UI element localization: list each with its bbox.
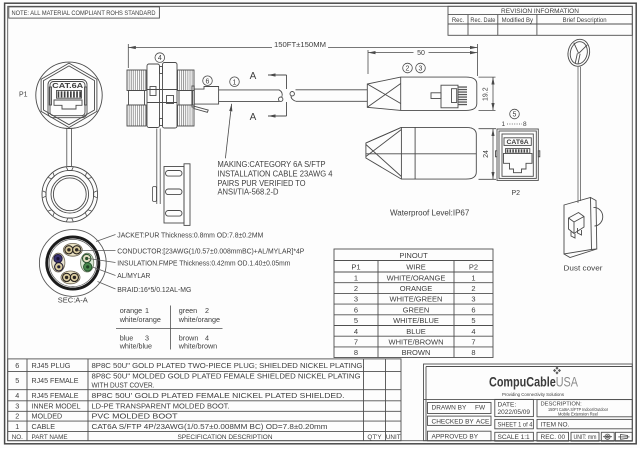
svg-text:150FT±150MM: 150FT±150MM [274,42,326,49]
svg-text:P2: P2 [469,262,478,271]
svg-text:7: 7 [471,338,475,347]
svg-text:RJ45 FEMALE: RJ45 FEMALE [32,391,79,400]
svg-text:INSULATION.FMPE Thickness:0.42: INSULATION.FMPE Thickness:0.42mm OD.1.40… [117,261,290,268]
svg-text:orange: orange [120,306,142,315]
svg-text:Rec. Date: Rec. Date [470,18,496,24]
svg-text:PINOUT: PINOUT [399,251,428,260]
svg-text:FW: FW [475,405,486,412]
svg-text:white/orange: white/orange [178,315,220,324]
svg-text:ACE: ACE [476,418,490,425]
svg-text:ANSI/TIA-568.2-D: ANSI/TIA-568.2-D [218,188,279,197]
svg-text:5: 5 [513,112,517,119]
svg-text:UNIT: UNIT [386,434,401,441]
svg-text:3: 3 [419,66,423,73]
svg-text:8P8C 50U" MOLDED GOLD PLATED F: 8P8C 50U" MOLDED GOLD PLATED FEMALE SHIE… [92,371,361,380]
svg-text:SEC:A-A: SEC:A-A [58,296,88,305]
svg-text:CAT6A: CAT6A [507,139,529,146]
svg-text:3: 3 [354,295,358,304]
svg-text:LD-PE TRANSPARENT MOLDED BOOT.: LD-PE TRANSPARENT MOLDED BOOT. [92,402,230,411]
svg-text:AL/MYLAR: AL/MYLAR [117,273,150,280]
svg-text:6: 6 [354,305,358,314]
svg-text:WHITE/GREEN: WHITE/GREEN [390,295,443,304]
svg-text:SHEET 1 of 4: SHEET 1 of 4 [498,422,533,429]
svg-text:1: 1 [233,79,237,86]
svg-text:REC. 00: REC. 00 [541,434,566,441]
svg-text:DATE:: DATE: [498,402,517,409]
svg-text:BROWN: BROWN [402,348,431,357]
svg-text:CompuCableUSA: CompuCableUSA [489,375,578,390]
svg-text:8P8C 50U" GOLD PLATED TWO-PIE: 8P8C 50U" GOLD PLATED TWO-PIECE PLUG; SH… [92,361,365,370]
svg-text:white/brown: white/brown [178,342,217,351]
svg-text:4: 4 [471,327,475,336]
svg-text:Dust cover: Dust cover [564,266,604,273]
svg-text:BLUE: BLUE [406,327,426,336]
svg-text:7: 7 [354,338,358,347]
svg-text:4: 4 [15,391,19,400]
svg-text:PART NAME: PART NAME [32,434,68,441]
svg-text:WHITE/BLUE: WHITE/BLUE [393,316,439,325]
svg-text:2022/05/09: 2022/05/09 [498,409,531,416]
svg-text:CONDUCTOR:[23AWG(1/0.57±0.008m: CONDUCTOR:[23AWG(1/0.57±0.008mmBC)+AL/MY… [117,248,304,255]
svg-text:GREEN: GREEN [403,305,430,314]
svg-text:Providing Connectivity Solutio: Providing Connectivity Solutions [502,392,565,398]
svg-text:8: 8 [523,121,527,128]
svg-text:JACKET:PUR Thickness:0.8mm OD:: JACKET:PUR Thickness:0.8mm OD:7.8±0.2MM [117,233,263,240]
svg-text:RJ45 PLUG: RJ45 PLUG [32,361,71,370]
svg-text:CABLE: CABLE [32,422,56,431]
svg-text:6: 6 [15,361,19,370]
svg-text:CAT6A S/FTP 4P/23AWG(1/0.57±0.: CAT6A S/FTP 4P/23AWG(1/0.57±0.008MM BC) … [92,422,328,431]
svg-text:1: 1 [15,422,19,431]
svg-text:Rec.: Rec. [452,18,465,24]
svg-text:INNER MODEL: INNER MODEL [32,402,81,411]
svg-text:PAIRS PUR VERIFIED TO: PAIRS PUR VERIFIED TO [218,179,306,188]
svg-text:WIRE: WIRE [406,262,426,271]
svg-text:6: 6 [206,78,210,85]
svg-text:8: 8 [354,348,358,357]
svg-text:WHITE/BROWN: WHITE/BROWN [389,338,444,347]
svg-text:P1: P1 [351,262,360,271]
svg-text:A: A [250,112,257,123]
svg-text:2: 2 [471,284,475,293]
svg-text:50: 50 [417,50,425,57]
svg-text:Brief Description: Brief Description [563,18,607,24]
svg-text:MOLDED: MOLDED [32,412,63,421]
svg-text:5: 5 [471,316,475,325]
svg-text:1: 1 [471,273,475,282]
svg-text:6: 6 [471,305,475,314]
svg-text:UNIT: mm: UNIT: mm [574,435,597,441]
svg-text:INSTALLATION CABLE 23AWG 4: INSTALLATION CABLE 23AWG 4 [218,169,334,178]
svg-text:Modified By: Modified By [502,18,533,24]
svg-text:8P8C 50U' GOLD PLATED FEMALE N: 8P8C 50U' GOLD PLATED FEMALE NICKEL PLAT… [92,391,345,400]
svg-text:8: 8 [471,348,475,357]
svg-text:SCALE 1:1: SCALE 1:1 [498,434,531,441]
svg-text:MAKING:CATEGORY 6A S/FTP: MAKING:CATEGORY 6A S/FTP [218,160,326,169]
svg-text:WITH DUST COVER.: WITH DUST COVER. [92,381,155,390]
svg-text:P2: P2 [512,190,521,197]
svg-text:A: A [250,71,257,82]
svg-text:RJ45 FEMALE: RJ45 FEMALE [32,376,79,385]
svg-text:QT'Y: QT'Y [367,434,382,441]
svg-text:2: 2 [205,306,209,315]
svg-text:5: 5 [15,376,19,385]
svg-text:DRAWN BY: DRAWN BY [432,405,467,412]
svg-text:Waterproof Level:IP67: Waterproof Level:IP67 [390,209,470,218]
svg-text:REVISION INFORMATION: REVISION INFORMATION [501,8,579,15]
svg-text:1: 1 [502,121,506,128]
svg-text:white/blue: white/blue [119,342,152,351]
svg-text:green: green [179,306,197,315]
svg-text:5: 5 [354,316,358,325]
svg-text:2: 2 [15,412,19,421]
svg-text:19.2: 19.2 [482,87,489,101]
svg-text:NO.: NO. [12,434,23,441]
svg-text:3: 3 [471,295,475,304]
svg-text:4: 4 [354,327,358,336]
svg-text:4: 4 [158,55,162,62]
svg-text:Mobile Extension Reel: Mobile Extension Reel [558,412,598,417]
svg-text:BRAID:16*5/0.12AL-MG: BRAID:16*5/0.12AL-MG [117,287,191,294]
svg-text:P1: P1 [19,92,28,99]
svg-text:1: 1 [354,273,358,282]
svg-text:white/orange: white/orange [119,315,161,324]
svg-text:SPECIFICATION DESCRIPTION: SPECIFICATION DESCRIPTION [178,434,273,441]
svg-text:WHITE/ORANGE: WHITE/ORANGE [387,273,446,282]
svg-text:PVC MOLDED BOOT: PVC MOLDED BOOT [92,412,179,421]
svg-text:2: 2 [406,66,410,73]
svg-text:APPROVED BY: APPROVED BY [432,433,479,440]
svg-text:CHECKED BY: CHECKED BY [432,418,475,425]
svg-text:CAT.6A: CAT.6A [52,81,83,90]
svg-text:2: 2 [354,284,358,293]
svg-text:24: 24 [483,150,490,158]
svg-text:ORANGE: ORANGE [400,284,433,293]
svg-text:NOTE: ALL MATERIAL COMPLIANT R: NOTE: ALL MATERIAL COMPLIANT ROHS STANDA… [12,10,156,17]
svg-text:3: 3 [15,402,19,411]
svg-text:1: 1 [145,306,149,315]
svg-text:ITEM NO.: ITEM NO. [541,422,570,429]
